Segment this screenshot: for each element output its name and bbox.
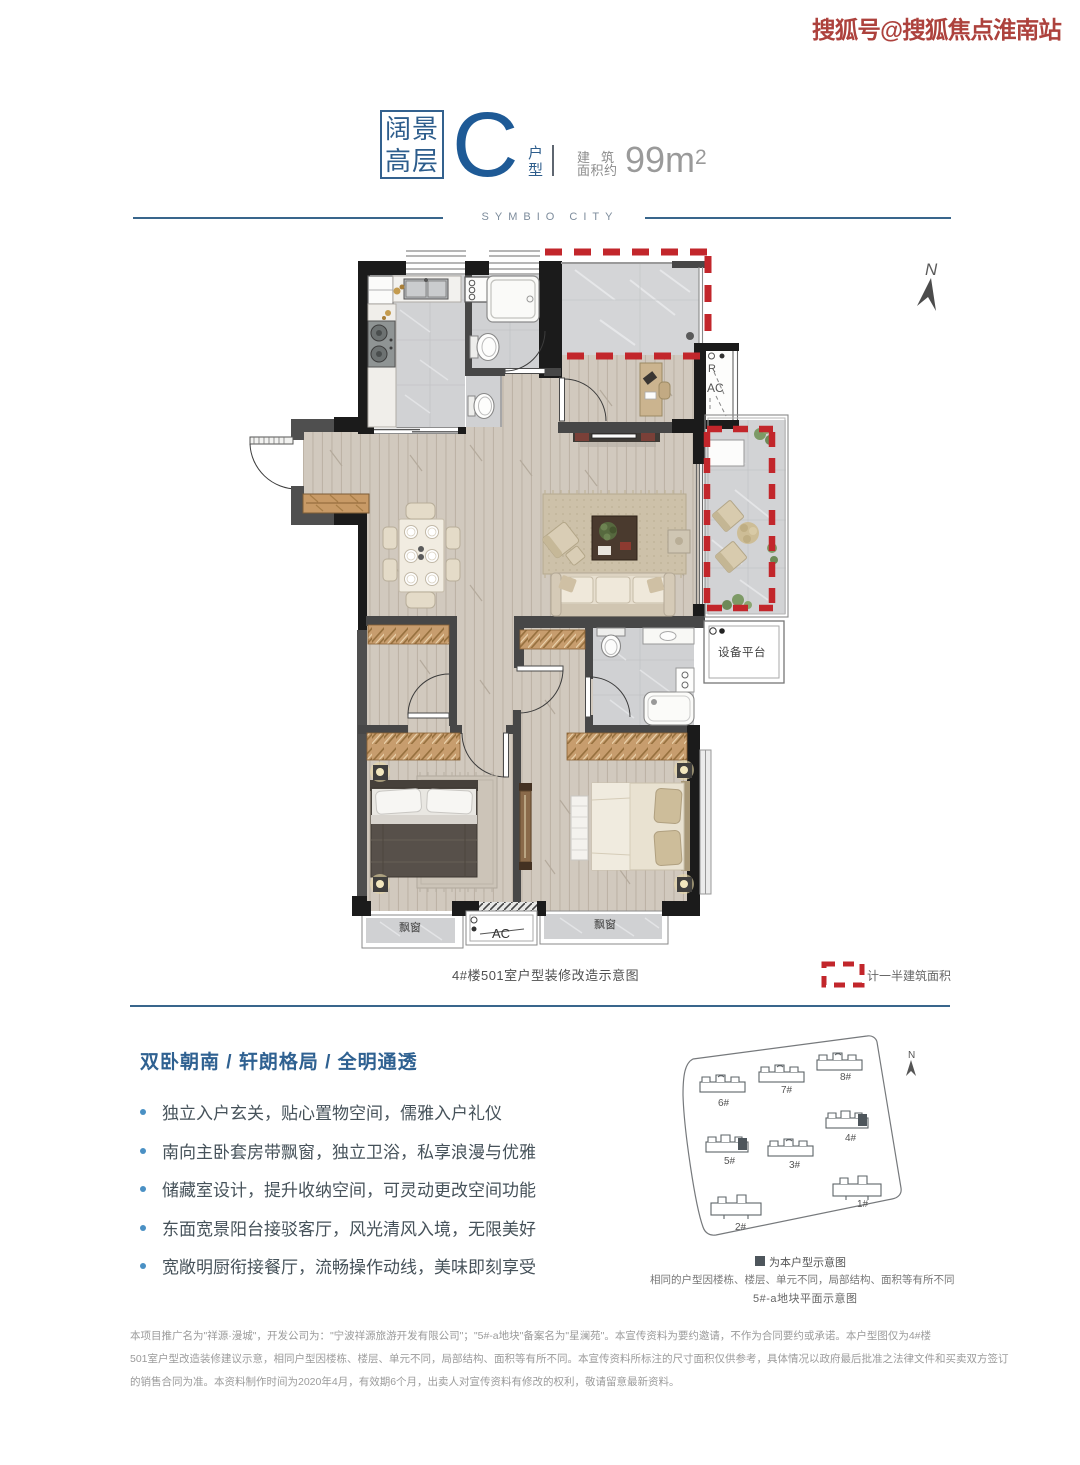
svg-text:3#: 3# (789, 1160, 801, 1171)
svg-text:1#: 1# (857, 1199, 869, 1210)
svg-text:飘窗: 飘窗 (399, 920, 421, 934)
svg-text:N: N (908, 1050, 915, 1061)
svg-text:AC: AC (492, 926, 510, 941)
svg-text:5#: 5# (724, 1156, 736, 1167)
svg-text:2#: 2# (735, 1222, 747, 1233)
svg-text:设备平台: 设备平台 (718, 645, 766, 659)
svg-text:飘窗: 飘窗 (594, 917, 616, 931)
svg-text:7#: 7# (781, 1085, 793, 1096)
svg-text:4#: 4# (845, 1133, 857, 1144)
svg-text:6#: 6# (718, 1098, 730, 1109)
svg-text:N: N (925, 260, 938, 279)
svg-text:8#: 8# (840, 1072, 852, 1083)
